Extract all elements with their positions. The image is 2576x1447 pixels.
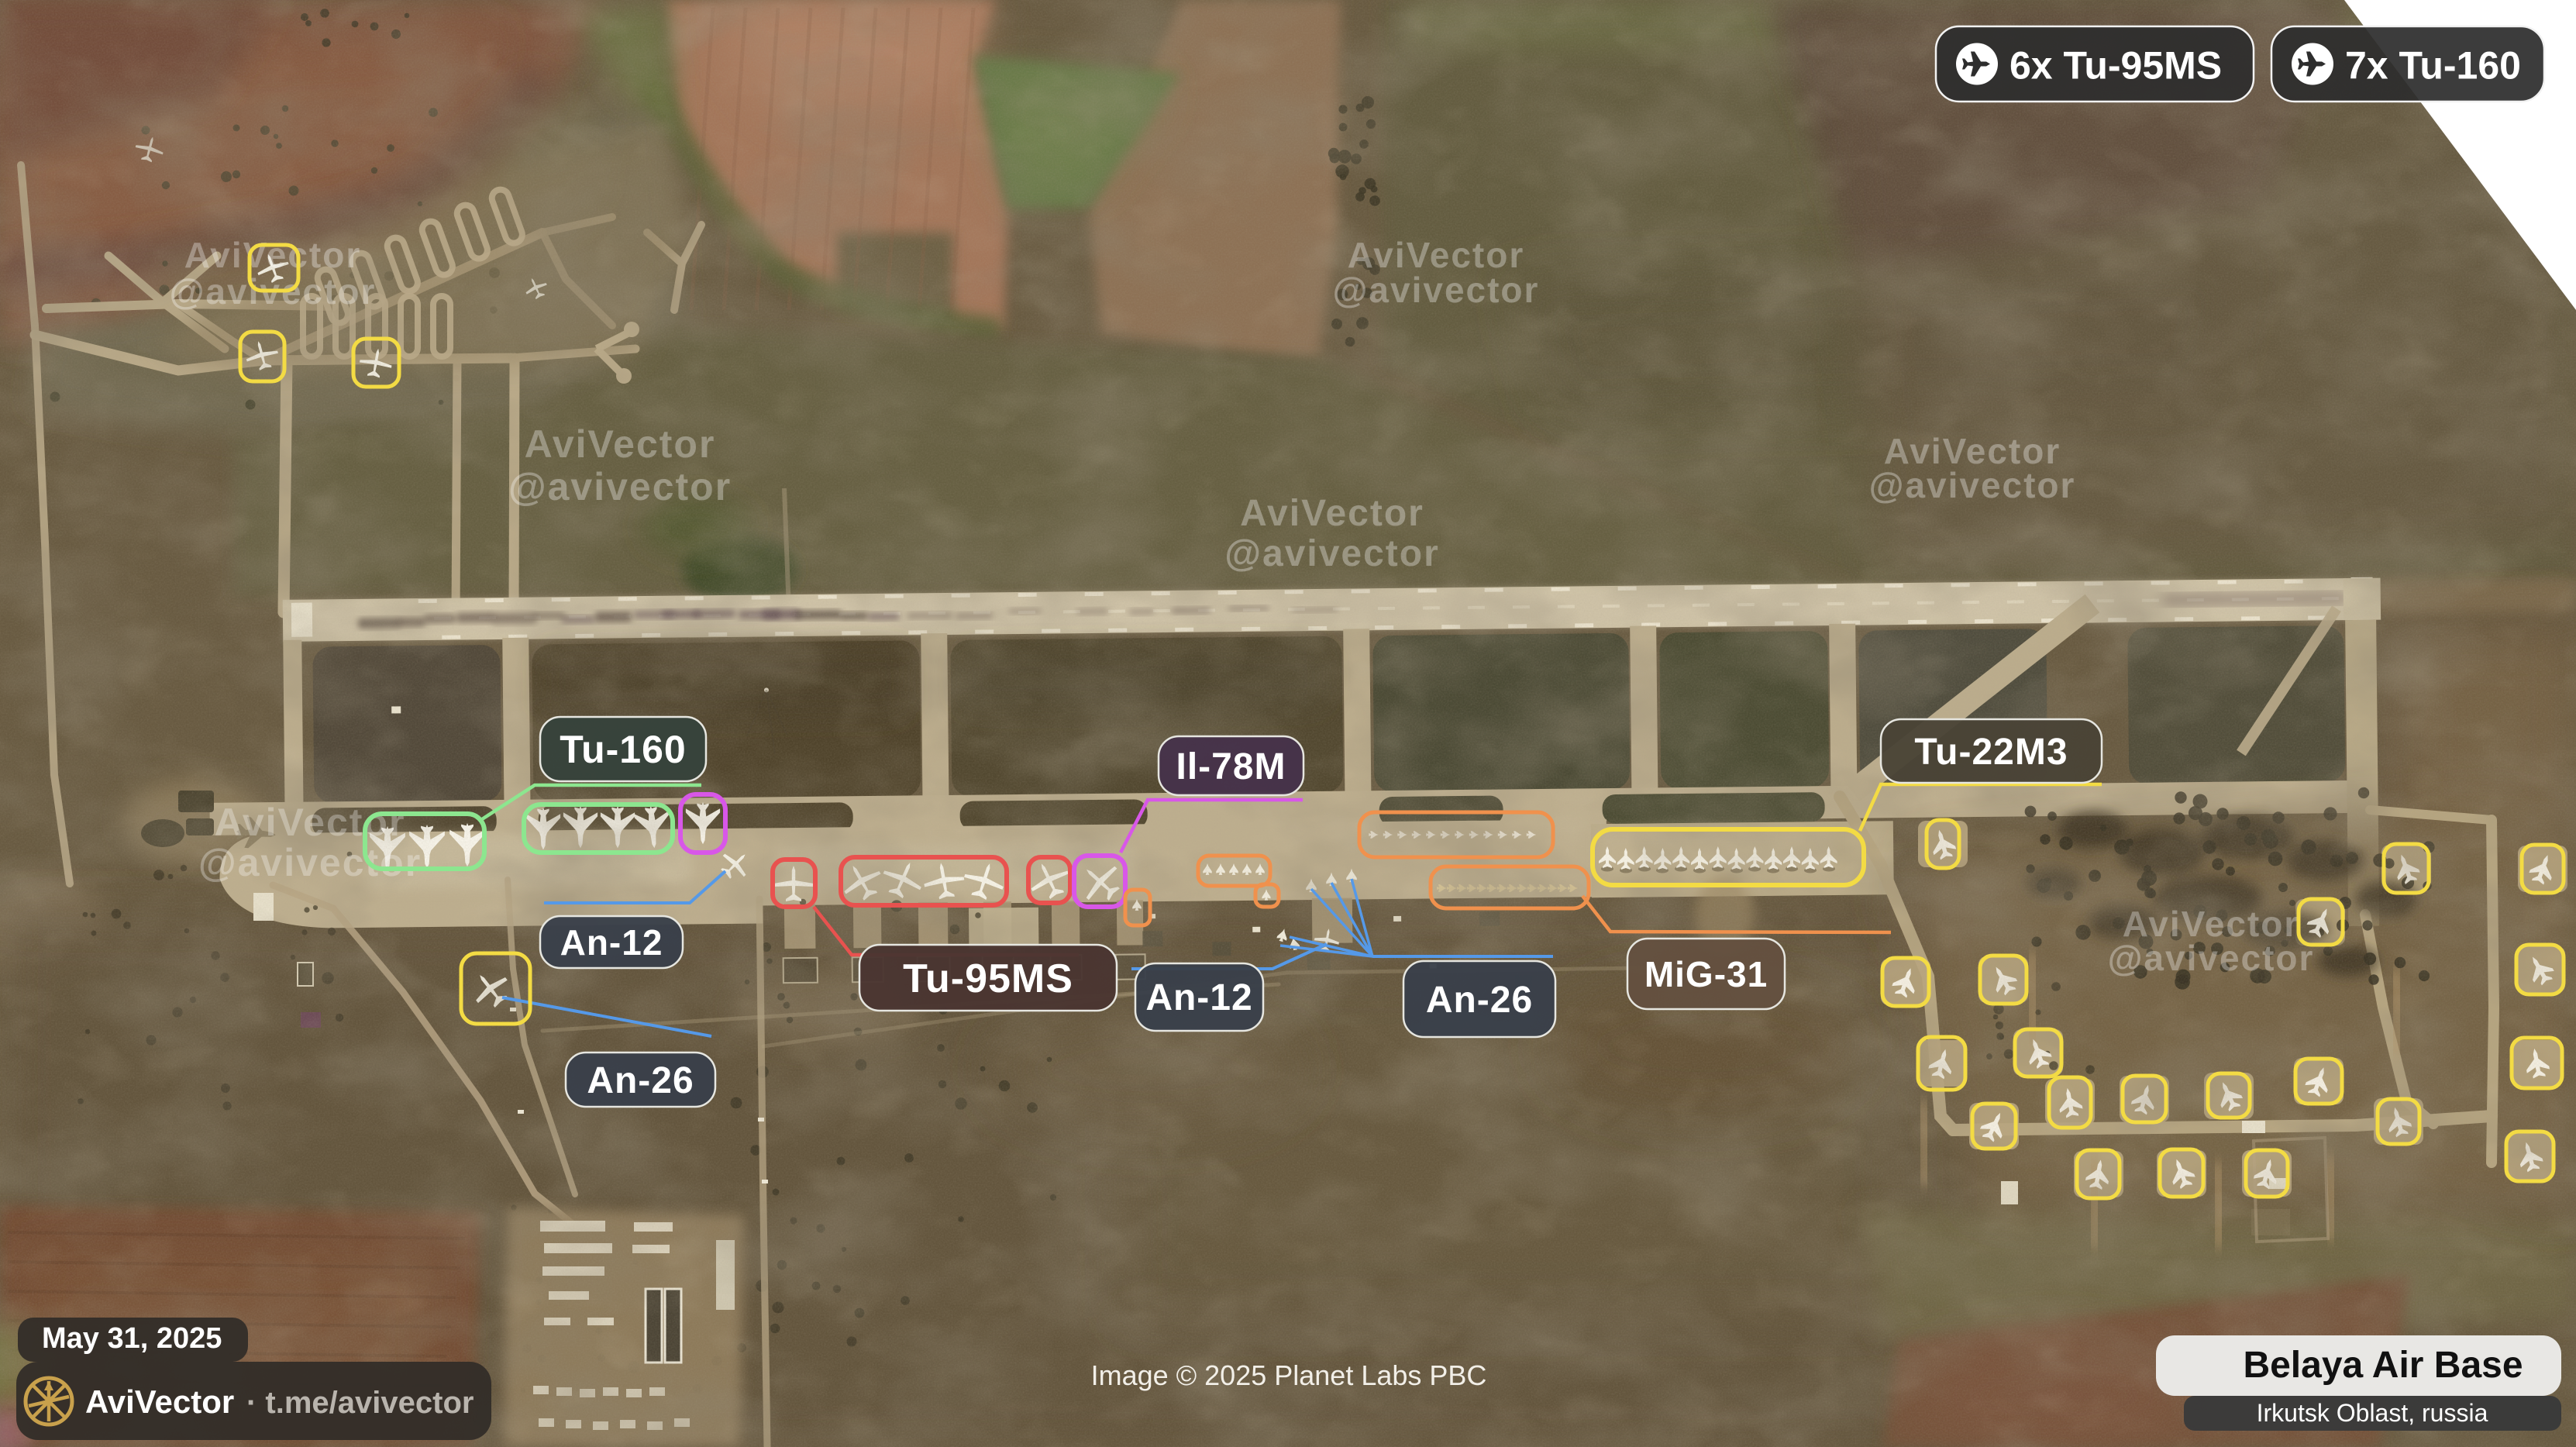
svg-text:Tu-160: Tu-160 — [560, 728, 686, 771]
svg-text:@avivector: @avivector — [1333, 270, 1540, 310]
svg-text:May 31, 2025: May 31, 2025 — [42, 1322, 222, 1355]
svg-text:Il-78M: Il-78M — [1176, 746, 1286, 787]
svg-text:AviVector: AviVector — [85, 1383, 234, 1420]
svg-text:@avivector: @avivector — [198, 841, 422, 884]
svg-text:AviVector: AviVector — [525, 422, 716, 466]
svg-text:AviVector: AviVector — [215, 801, 406, 844]
svg-text:@avivector: @avivector — [2108, 938, 2315, 978]
svg-text:Belaya Air Base: Belaya Air Base — [2243, 1345, 2523, 1386]
svg-text:Tu-22M3: Tu-22M3 — [1914, 732, 2068, 773]
svg-text:Tu-95MS: Tu-95MS — [903, 956, 1073, 1001]
svg-text:An-12: An-12 — [1145, 977, 1252, 1018]
svg-text:7x Tu-160: 7x Tu-160 — [2345, 44, 2521, 88]
svg-text:@avivector: @avivector — [1869, 465, 2076, 505]
svg-text:An-26: An-26 — [1426, 980, 1533, 1021]
svg-text:AviVector: AviVector — [184, 235, 362, 275]
svg-text:· t.me/avivector: · t.me/avivector — [246, 1386, 474, 1420]
svg-text:@avivector: @avivector — [508, 465, 732, 508]
svg-text:An-12: An-12 — [560, 922, 663, 963]
svg-text:MiG-31: MiG-31 — [1644, 954, 1768, 994]
svg-text:@avivector: @avivector — [1224, 533, 1440, 574]
svg-text:6x Tu-95MS: 6x Tu-95MS — [2009, 44, 2222, 88]
svg-text:Irkutsk Oblast, russia: Irkutsk Oblast, russia — [2257, 1399, 2488, 1427]
svg-text:An-26: An-26 — [587, 1060, 694, 1101]
svg-text:Image © 2025 Planet Labs PBC: Image © 2025 Planet Labs PBC — [1091, 1359, 1487, 1391]
svg-text:AviVector: AviVector — [1240, 493, 1424, 534]
